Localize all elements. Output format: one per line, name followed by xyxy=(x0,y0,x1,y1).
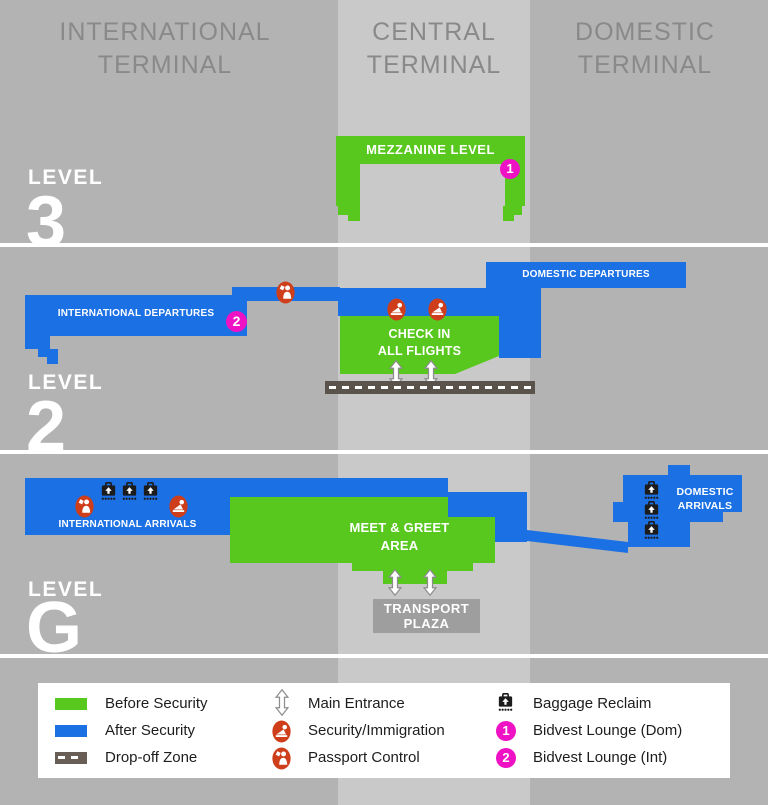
before-security-swatch xyxy=(55,698,87,710)
security-immigration-icon xyxy=(272,720,291,743)
international-arrivals-label: INTERNATIONAL ARRIVALS xyxy=(25,519,230,530)
area-segment xyxy=(352,563,473,571)
passport-control-icon xyxy=(276,281,295,304)
meet-greet-label: MEET & GREET AREA xyxy=(292,519,507,555)
security-immigration-icon xyxy=(387,298,406,321)
main-entrance-arrow xyxy=(423,569,437,596)
bidvest-lounge-dom-badge: 1 xyxy=(496,721,516,741)
passport-control-icon xyxy=(75,495,94,518)
header-domestic-terminal: DOMESTIC TERMINAL xyxy=(530,16,760,82)
bidvest-lounge-int-badge: 2 xyxy=(496,748,516,768)
drop-off-dashes xyxy=(329,386,531,389)
bidvest-lounge-1-badge: 1 xyxy=(500,159,520,179)
legend-item-label: Main Entrance xyxy=(308,696,405,712)
level-separator xyxy=(0,243,768,247)
level2-number: 2 xyxy=(26,391,66,463)
passport-control-icon xyxy=(272,747,291,770)
area-segment xyxy=(503,214,514,221)
main-entrance-arrow xyxy=(388,569,402,596)
legend-item-label: Security/Immigration xyxy=(308,723,445,739)
legend-item-label: Bidvest Lounge (Int) xyxy=(533,750,667,766)
legend-item-label: Bidvest Lounge (Dom) xyxy=(533,723,682,739)
domestic-arrivals-label: DOMESTIC ARRIVALS xyxy=(657,486,753,513)
area-segment xyxy=(499,316,541,358)
levelg-number: G xyxy=(26,592,82,664)
header-international-terminal: INTERNATIONAL TERMINAL xyxy=(20,16,310,82)
header-central-terminal: CENTRAL TERMINAL xyxy=(338,16,530,82)
domestic-departures-label: DOMESTIC DEPARTURES xyxy=(486,262,686,288)
area-segment xyxy=(336,163,360,206)
arrivals-corridor xyxy=(527,529,628,553)
mezzanine-label: MEZZANINE LEVEL xyxy=(336,142,525,157)
baggage-reclaim-icon xyxy=(120,482,139,501)
baggage-reclaim-icon xyxy=(496,693,515,712)
drop-off-swatch-dashes xyxy=(58,756,84,759)
check-in-label: CHECK IN ALL FLIGHTS xyxy=(340,326,499,360)
legend-item-label: Baggage Reclaim xyxy=(533,696,651,712)
baggage-reclaim-icon xyxy=(141,482,160,501)
legend-item-label: Before Security xyxy=(105,696,208,712)
level3-number: 3 xyxy=(26,186,66,258)
area-segment xyxy=(47,356,58,364)
international-departures-label: INTERNATIONAL DEPARTURES xyxy=(25,308,247,319)
main-entrance-arrow xyxy=(275,689,289,716)
legend-item-label: Passport Control xyxy=(308,750,420,766)
area-segment xyxy=(348,214,360,221)
drop-off-zone-bar xyxy=(325,381,535,394)
airport-terminal-map: INTERNATIONAL TERMINAL CENTRAL TERMINAL … xyxy=(0,0,768,805)
level-separator xyxy=(0,450,768,454)
drop-off-swatch xyxy=(55,752,87,764)
legend-item-label: Drop-off Zone xyxy=(105,750,197,766)
baggage-reclaim-icon xyxy=(642,481,661,500)
after-security-swatch xyxy=(55,725,87,737)
security-immigration-icon xyxy=(428,298,447,321)
baggage-reclaim-icon xyxy=(99,482,118,501)
transport-plaza: TRANSPORT PLAZA xyxy=(373,599,480,633)
area-segment xyxy=(613,502,623,522)
bidvest-lounge-2-badge: 2 xyxy=(226,311,247,332)
area-segment xyxy=(25,336,50,349)
baggage-reclaim-icon xyxy=(642,521,661,540)
transport-plaza-label: TRANSPORT PLAZA xyxy=(373,601,480,631)
level-separator xyxy=(0,654,768,658)
security-immigration-icon xyxy=(169,495,188,518)
area-segment xyxy=(623,512,723,522)
area-segment xyxy=(668,465,690,475)
legend-item-label: After Security xyxy=(105,723,195,739)
baggage-reclaim-icon xyxy=(642,501,661,520)
